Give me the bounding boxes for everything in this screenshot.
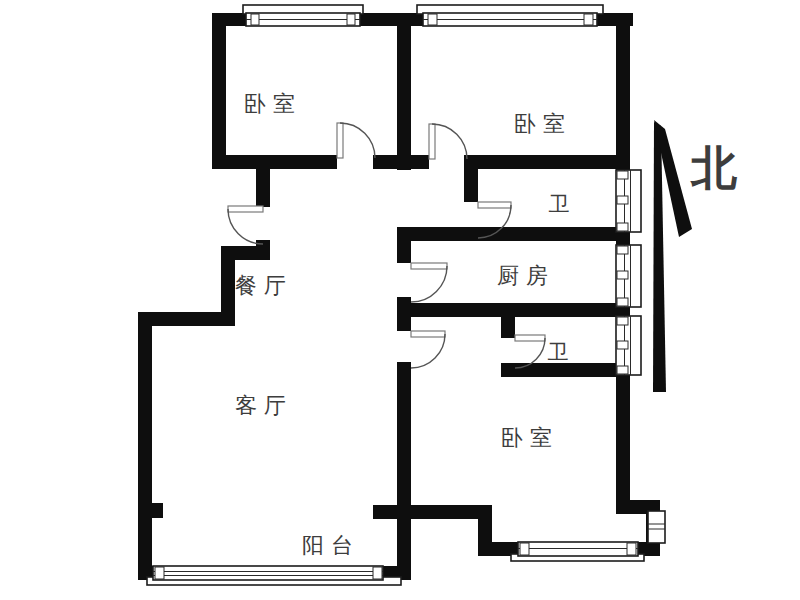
floorplan-image: 卧室 卧室 卫 厨房 餐厅 卫 客厅 卧室 阳台 北 [0, 0, 800, 600]
room-label-kitchen: 厨房 [497, 263, 555, 288]
window-bedroom-southeast [511, 542, 644, 561]
room-label-bedroom-northeast: 卧室 [514, 111, 572, 136]
floorplan-svg: 卧室 卧室 卫 厨房 餐厅 卫 客厅 卧室 阳台 北 [0, 0, 800, 600]
window-bathroom-south [616, 316, 641, 375]
room-label-living: 客厅 [235, 393, 293, 418]
wall-segment [478, 519, 492, 545]
wall-segment [373, 505, 492, 519]
wall-segment [501, 363, 630, 377]
wall-segment [501, 317, 515, 338]
room-label-bedroom-southeast: 卧室 [501, 425, 559, 450]
room-label-bathroom-north: 卫 [549, 192, 570, 216]
window-bedroom-northeast [417, 5, 603, 26]
wall-segment [464, 232, 478, 241]
room-label-dining: 餐厅 [235, 273, 293, 298]
wall-segment [397, 13, 411, 170]
wall-segment [397, 227, 630, 241]
window-kitchen [616, 245, 641, 307]
north-label: 北 [690, 143, 737, 194]
wall-segment [397, 227, 411, 263]
room-label-bathroom-south: 卫 [548, 340, 569, 364]
wall-segment [256, 165, 270, 207]
window-bathroom-north [616, 170, 641, 232]
window-bedroom-northwest [243, 5, 363, 26]
wall-segment [465, 155, 630, 169]
room-label-balcony: 阳台 [302, 533, 360, 558]
wall-segment [397, 362, 411, 580]
wall-segment [147, 503, 163, 518]
window-balcony [147, 566, 401, 585]
wall-segment [212, 13, 226, 168]
wall-segment [138, 312, 235, 326]
wall-segment [212, 155, 337, 169]
room-label-bedroom-northwest: 卧室 [244, 91, 302, 116]
wall-segment [397, 303, 630, 317]
wall-segment [464, 155, 478, 202]
window-southeast-small [648, 511, 665, 543]
wall-segment [138, 312, 152, 580]
